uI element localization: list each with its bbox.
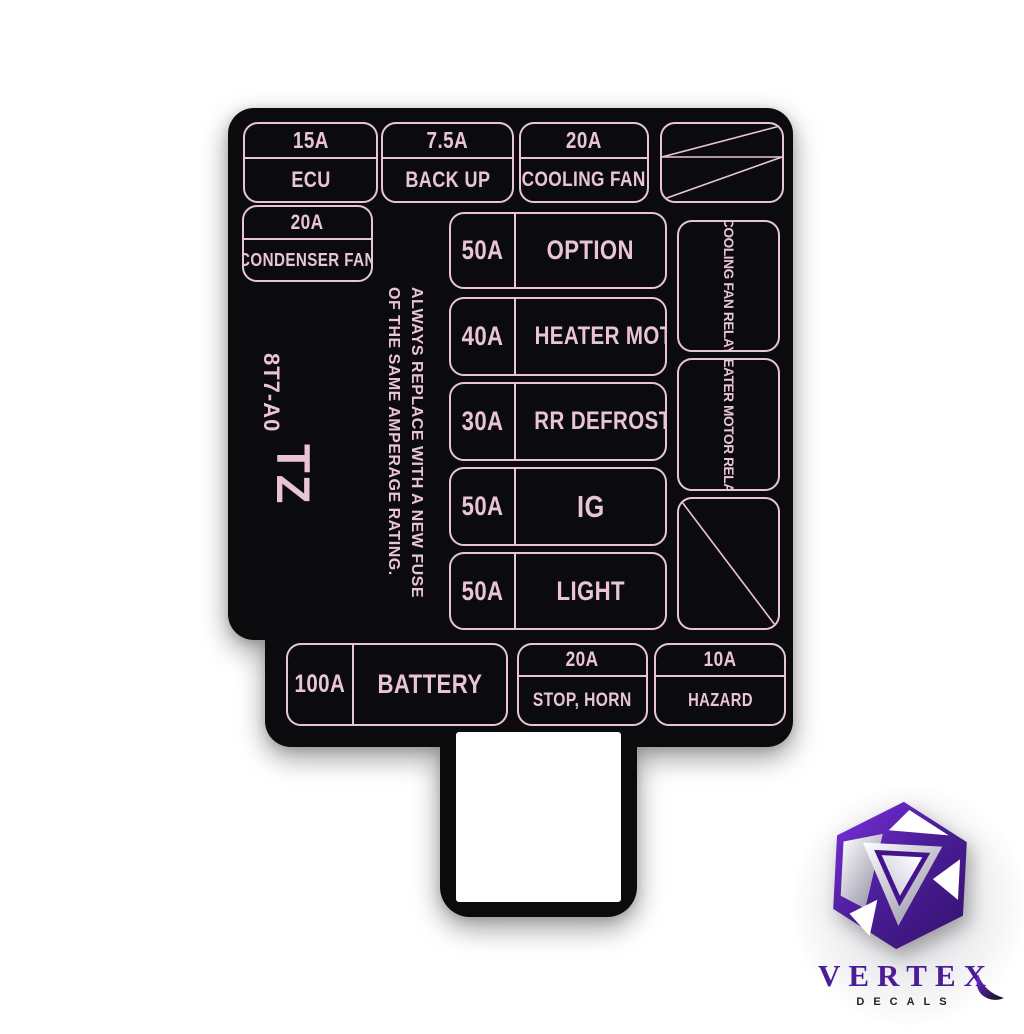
fuse-label: CONDENSER FAN (242, 249, 373, 271)
fuse-box-hazard: 10A HAZARD (654, 643, 786, 726)
relay-label: HEATER MOTOR RELAY (721, 358, 736, 491)
fuse-box-condenser-fan: 20A CONDENSER FAN (242, 205, 373, 282)
fuse-box-backup: 7.5A BACK UP (381, 122, 514, 203)
amp-cell: 40A (451, 299, 516, 374)
amp-value: 50A (462, 235, 504, 266)
fuse-label: IG (577, 489, 605, 525)
label-cell: CONDENSER FAN (244, 240, 371, 280)
label-cell: HEATER MOTOR (516, 299, 667, 374)
amp-value: 30A (462, 406, 504, 437)
amp-cell: 50A (451, 214, 516, 287)
fuse-label: HEATER MOTOR (535, 322, 667, 351)
amp-value: 20A (566, 648, 599, 672)
label-cell: BACK UP (383, 159, 512, 201)
warning-line-2: OF THE SAME AMPERAGE RATING. (382, 287, 405, 567)
label-cell: HAZARD (656, 677, 784, 724)
amp-cell: 15A (245, 124, 376, 159)
warning-vertical-text: ALWAYS REPLACE WITH A NEW FUSE OF THE SA… (382, 287, 428, 567)
amp-cell: 10A (656, 645, 784, 677)
label-cell: OPTION (516, 214, 665, 287)
fuse-label: BATTERY (378, 669, 483, 700)
amp-value: 100A (295, 670, 346, 699)
label-cell: IG (516, 469, 665, 544)
fuse-box-cooling-fan: 20A COOLING FAN (519, 122, 649, 203)
amp-value: 20A (291, 211, 324, 235)
fuse-box-option: 50A OPTION (449, 212, 667, 289)
label-cell: BATTERY (354, 645, 506, 724)
amp-cell: 20A (519, 645, 646, 677)
blank-crossed-box (660, 122, 784, 203)
relay-label: COOLING FAN RELAY (721, 220, 736, 352)
relay-box-cooling-fan: COOLING FAN RELAY (677, 220, 780, 352)
amp-cell: 20A (244, 207, 371, 240)
amp-cell: 50A (451, 469, 516, 544)
relay-box-heater-motor: HEATER MOTOR RELAY (677, 358, 780, 491)
label-cell: STOP, HORN (519, 677, 646, 724)
amp-cell: 50A (451, 554, 516, 628)
amp-value: 50A (462, 576, 504, 607)
amp-cell: 30A (451, 384, 516, 459)
warning-line-1: ALWAYS REPLACE WITH A NEW FUSE (405, 287, 428, 567)
fuse-label: ECU (291, 167, 330, 193)
amp-cell: 7.5A (383, 124, 512, 159)
blank-diagonal-box (677, 497, 780, 630)
model-code-vertical-text: TZ (266, 444, 321, 505)
brand-subtitle: DECALS (800, 996, 1012, 1008)
diagonal-line-icon (679, 499, 778, 628)
fuse-label: BACK UP (405, 167, 490, 193)
fuse-box-light: 50A LIGHT (449, 552, 667, 630)
fuse-label: HAZARD (688, 690, 753, 711)
label-cell: RR DEFROSTER (516, 384, 667, 459)
fuse-box-rr-defroster: 30A RR DEFROSTER (449, 382, 667, 461)
amp-cell: 100A (288, 645, 354, 724)
amp-cell: 20A (521, 124, 647, 159)
product-image: 15A ECU 7.5A BACK UP 20A COOLING FAN 20A… (0, 0, 1024, 1024)
amp-value: 40A (462, 321, 504, 352)
fuse-label: OPTION (547, 235, 634, 266)
fuse-label: LIGHT (556, 576, 624, 607)
vertex-emblem-icon (822, 796, 978, 956)
amp-value: 15A (293, 127, 329, 154)
amp-value: 50A (462, 491, 504, 522)
fuse-box-stop-horn: 20A STOP, HORN (517, 643, 648, 726)
fuse-box-ecu: 15A ECU (243, 122, 378, 203)
amp-value: 20A (566, 127, 602, 154)
part-code-vertical-text: 8T7-A0 (258, 353, 284, 432)
fuse-box-battery: 100A BATTERY (286, 643, 508, 726)
label-cell: LIGHT (516, 554, 665, 628)
amp-value: 7.5A (427, 127, 468, 154)
crossed-out-lines-icon (662, 124, 782, 201)
amp-value: 10A (704, 648, 737, 672)
fuse-label: COOLING FAN (522, 168, 646, 192)
fuse-box-ig: 50A IG (449, 467, 667, 546)
label-cell: COOLING FAN (521, 159, 647, 201)
fuse-label: STOP, HORN (533, 690, 632, 712)
fuse-label: RR DEFROSTER (534, 407, 667, 436)
fuse-box-heater-motor: 40A HEATER MOTOR (449, 297, 667, 376)
label-cell: ECU (245, 159, 376, 201)
decal-cutout-window (456, 732, 621, 902)
